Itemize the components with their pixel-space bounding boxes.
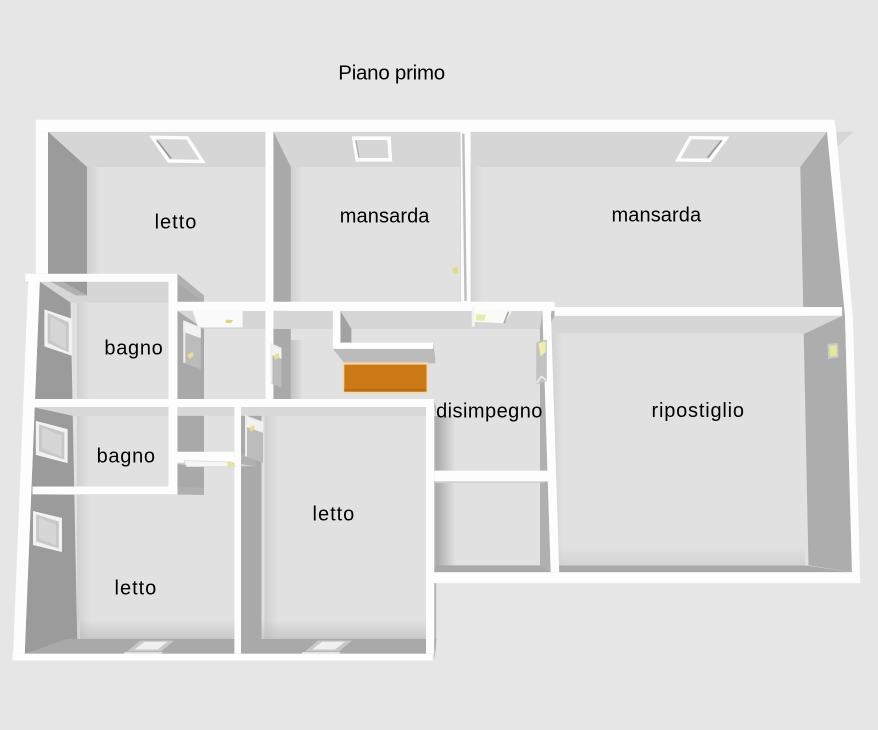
svg-text:letto: letto [155, 211, 198, 233]
svg-text:Piano primo: Piano primo [338, 61, 445, 84]
svg-text:letto: letto [115, 578, 158, 600]
svg-text:mansarda: mansarda [340, 206, 431, 228]
svg-text:letto: letto [313, 503, 356, 525]
svg-text:bagno: bagno [104, 337, 163, 359]
svg-text:bagno: bagno [97, 446, 156, 468]
svg-text:ripostiglio: ripostiglio [652, 400, 745, 422]
svg-text:disimpegno: disimpegno [436, 400, 543, 422]
svg-text:mansarda: mansarda [612, 205, 703, 227]
